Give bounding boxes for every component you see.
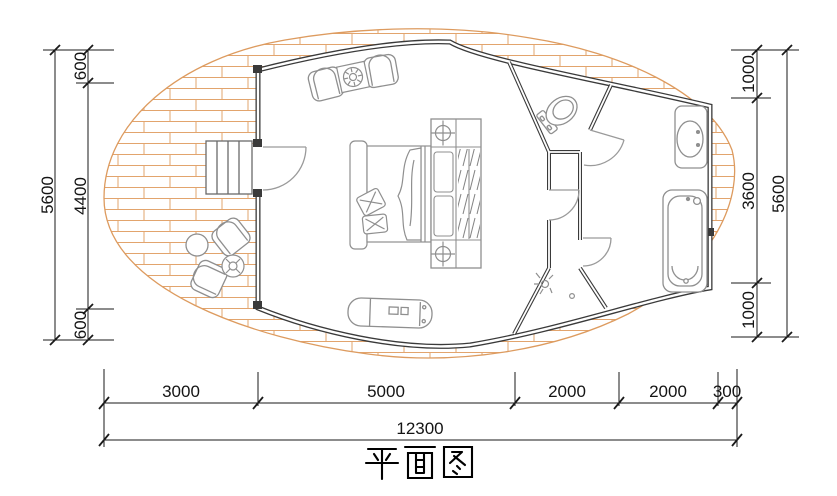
dim-right-2: 3600: [739, 172, 758, 210]
dim-right-1: 1000: [739, 55, 758, 93]
pillow-icon: [362, 214, 388, 234]
dim-bottom-total: 12300: [396, 419, 443, 438]
double-bed: [350, 141, 431, 249]
dim-bottom-1: 3000: [162, 382, 200, 401]
stove-table-icon: [337, 61, 370, 92]
title-glyphs: [366, 447, 472, 479]
dim-left-total: 5600: [38, 176, 57, 214]
dim-right-3: 1000: [739, 291, 758, 329]
dim-left-3: 600: [71, 311, 90, 339]
dim-bottom-2: 5000: [367, 382, 405, 401]
floor-plan-canvas: 3000 5000 2000 2000 300 12300 5600 600 4…: [0, 0, 837, 496]
side-table-icon: [222, 255, 244, 277]
nightstand: [434, 152, 453, 192]
bathtub-icon: [663, 190, 707, 292]
nightstand: [434, 196, 453, 236]
dim-left-1: 600: [71, 52, 90, 80]
chaise-lounge-icon: [348, 298, 433, 329]
entry-steps: [206, 141, 252, 194]
dim-right-total: 5600: [769, 175, 788, 213]
dim-left-2: 4400: [71, 177, 90, 215]
floor-plan-page: 3000 5000 2000 2000 300 12300 5600 600 4…: [0, 0, 837, 496]
ottoman-icon: [186, 234, 208, 256]
dim-bottom-5: 300: [713, 382, 741, 401]
dim-bottom-3: 2000: [548, 382, 586, 401]
washbasin-icon: [675, 106, 707, 168]
wardrobe-with-spotlights: [431, 119, 481, 268]
dim-bottom-4: 2000: [649, 382, 687, 401]
